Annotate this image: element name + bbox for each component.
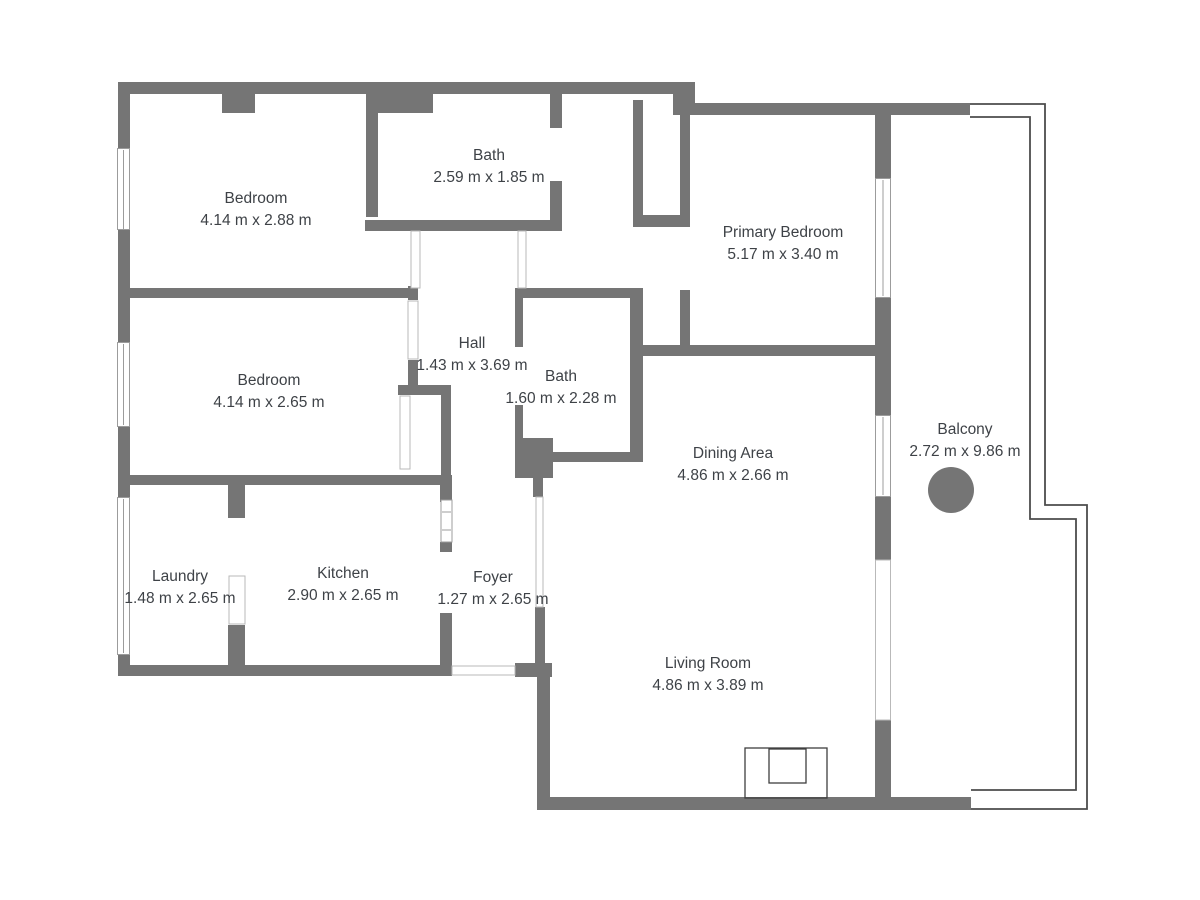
window-dining xyxy=(876,416,891,497)
room-label-foyer: Foyer 1.27 m x 2.65 m xyxy=(437,567,548,611)
room-label-dining-area: Dining Area 4.86 m x 2.66 m xyxy=(677,443,788,487)
room-label-bedroom-top: Bedroom 4.14 m x 2.88 m xyxy=(200,188,311,232)
room-label-kitchen: Kitchen 2.90 m x 2.65 m xyxy=(287,563,398,607)
room-label-bath-hall: Bath 1.60 m x 2.28 m xyxy=(505,366,616,410)
room-dims: 2.72 m x 9.86 m xyxy=(909,441,1020,463)
room-dims: 4.86 m x 2.66 m xyxy=(677,465,788,487)
room-label-bath-top: Bath 2.59 m x 1.85 m xyxy=(433,145,544,189)
opening-closet-door xyxy=(400,396,410,469)
room-name: Balcony xyxy=(909,419,1020,441)
room-dims: 1.60 m x 2.28 m xyxy=(505,388,616,410)
room-label-living-room: Living Room 4.86 m x 3.89 m xyxy=(652,653,763,697)
room-name: Dining Area xyxy=(677,443,788,465)
room-name: Bedroom xyxy=(200,188,311,210)
room-dims: 1.27 m x 2.65 m xyxy=(437,589,548,611)
room-name: Laundry xyxy=(124,566,235,588)
room-dims: 2.90 m x 2.65 m xyxy=(287,585,398,607)
room-name: Primary Bedroom xyxy=(723,222,844,244)
opening-hall-corridor xyxy=(518,231,526,288)
floor-plan: Bedroom 4.14 m x 2.88 m Bath 2.59 m x 1.… xyxy=(0,0,1200,900)
room-dims: 4.86 m x 3.89 m xyxy=(652,675,763,697)
fireplace xyxy=(745,748,827,798)
window-bedroom-mid xyxy=(118,343,130,427)
round-table-icon xyxy=(928,467,974,513)
room-name: Bedroom xyxy=(213,370,324,392)
room-label-laundry: Laundry 1.48 m x 2.65 m xyxy=(124,566,235,610)
room-label-balcony: Balcony 2.72 m x 9.86 m xyxy=(909,419,1020,463)
room-name: Hall xyxy=(416,333,527,355)
room-dims: 4.14 m x 2.65 m xyxy=(213,392,324,414)
window-bedroom-top xyxy=(118,149,130,230)
room-dims: 2.59 m x 1.85 m xyxy=(433,167,544,189)
opening-bedroom-top-door xyxy=(411,231,420,288)
room-name: Kitchen xyxy=(287,563,398,585)
opening-entry-door xyxy=(452,666,515,675)
room-dims: 5.17 m x 3.40 m xyxy=(723,244,844,266)
room-name: Bath xyxy=(505,366,616,388)
window-primary-bedroom xyxy=(876,179,891,298)
room-name: Foyer xyxy=(437,567,548,589)
room-name: Bath xyxy=(433,145,544,167)
room-name: Living Room xyxy=(652,653,763,675)
window-kitchen-foyer xyxy=(441,500,452,542)
room-dims: 4.14 m x 2.88 m xyxy=(200,210,311,232)
room-label-bedroom-mid: Bedroom 4.14 m x 2.65 m xyxy=(213,370,324,414)
room-label-primary-bedroom: Primary Bedroom 5.17 m x 3.40 m xyxy=(723,222,844,266)
door-balcony-slider xyxy=(876,560,891,720)
room-dims: 1.48 m x 2.65 m xyxy=(124,588,235,610)
